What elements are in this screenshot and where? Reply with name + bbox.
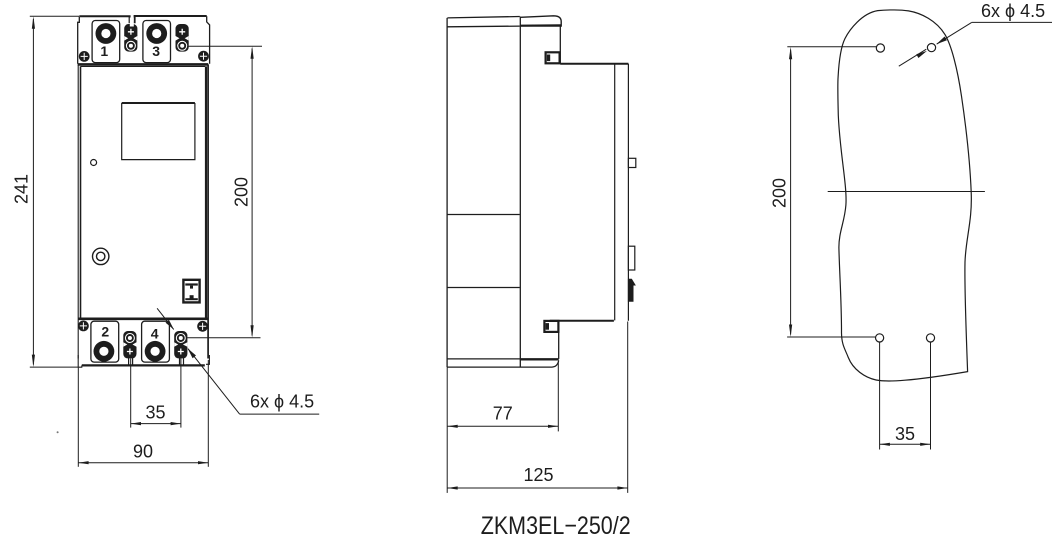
svg-text:241: 241: [11, 174, 31, 204]
svg-text:6x ϕ 4.5: 6x ϕ 4.5: [981, 1, 1045, 21]
svg-text:200: 200: [232, 177, 252, 207]
svg-text:6x ϕ 4.5: 6x ϕ 4.5: [250, 391, 314, 411]
svg-text:125: 125: [523, 465, 553, 485]
svg-text:77: 77: [493, 404, 513, 424]
svg-text:1: 1: [100, 43, 108, 59]
svg-text:2: 2: [101, 323, 109, 339]
svg-text:90: 90: [133, 441, 153, 461]
svg-text:ZKM3EL−250/2: ZKM3EL−250/2: [481, 512, 631, 540]
svg-text:35: 35: [895, 424, 915, 444]
svg-text:200: 200: [770, 178, 790, 208]
svg-text:35: 35: [145, 402, 165, 422]
svg-text:3: 3: [152, 43, 160, 59]
svg-text:4: 4: [151, 325, 159, 341]
